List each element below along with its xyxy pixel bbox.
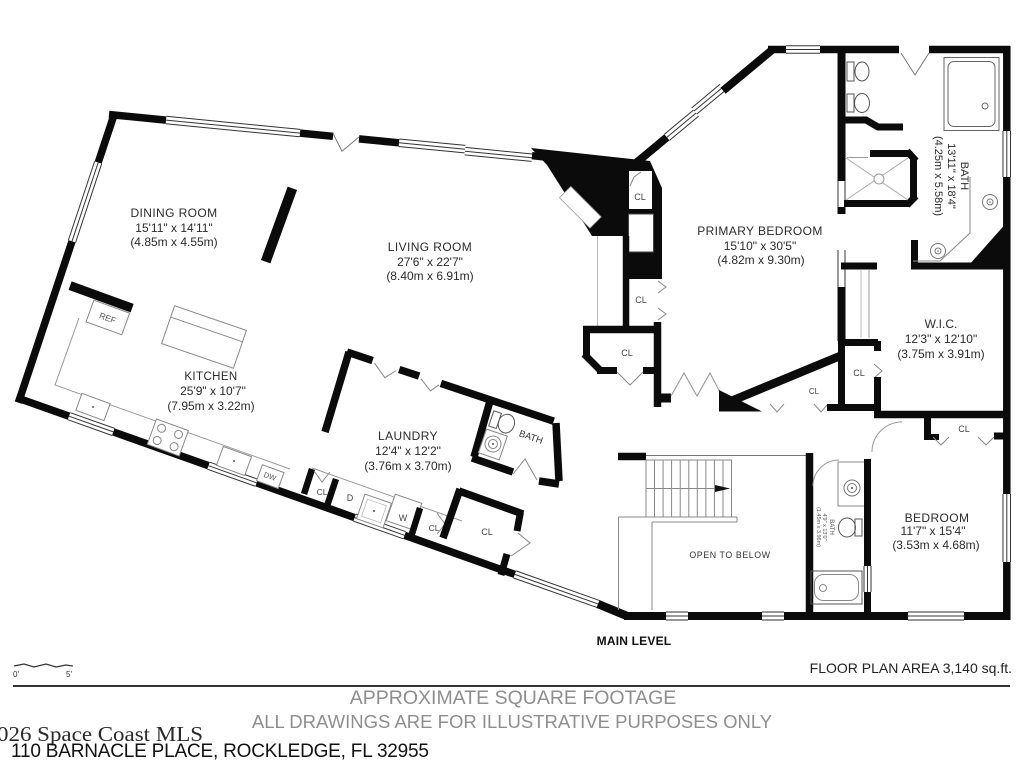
svg-text:D: D xyxy=(347,493,354,503)
svg-text:(3.75m x 3.91m): (3.75m x 3.91m) xyxy=(897,347,984,361)
svg-text:CL: CL xyxy=(429,523,440,533)
svg-text:CL: CL xyxy=(317,487,328,497)
svg-text:(4.85m x 4.55m): (4.85m x 4.55m) xyxy=(130,235,217,249)
svg-text:27'6" x 22'7": 27'6" x 22'7" xyxy=(397,255,463,269)
svg-text:DINING ROOM: DINING ROOM xyxy=(130,206,217,220)
svg-text:5': 5' xyxy=(66,670,72,679)
svg-text:25'9" x 10'7": 25'9" x 10'7" xyxy=(180,384,246,398)
svg-text:15'10" x 30'5": 15'10" x 30'5" xyxy=(724,239,797,253)
svg-text:11'7" x 15'4": 11'7" x 15'4" xyxy=(901,524,966,538)
svg-text:(7.95m x 3.22m): (7.95m x 3.22m) xyxy=(167,399,254,413)
svg-text:(4.82m x 9.30m): (4.82m x 9.30m) xyxy=(717,253,804,267)
svg-text:CL: CL xyxy=(621,348,633,358)
svg-text:CL: CL xyxy=(853,368,865,378)
svg-text:CL: CL xyxy=(635,295,647,305)
svg-text:12'4" x 12'2": 12'4" x 12'2" xyxy=(375,444,441,458)
svg-text:110 BARNACLE PLACE, ROCKLEDGE,: 110 BARNACLE PLACE, ROCKLEDGE, FL 32955 xyxy=(11,741,429,762)
svg-text:(3.76m x 3.70m): (3.76m x 3.70m) xyxy=(364,459,451,473)
svg-text:BEDROOM: BEDROOM xyxy=(905,511,970,525)
svg-text:BATH: BATH xyxy=(958,162,970,191)
svg-text:BATH: BATH xyxy=(828,519,834,535)
svg-text:(4.25m x 5.58m): (4.25m x 5.58m) xyxy=(932,136,944,216)
svg-text:ALL DRAWINGS ARE FOR ILLUSTRAT: ALL DRAWINGS ARE FOR ILLUSTRATIVE PURPOS… xyxy=(252,711,772,732)
svg-text:(3.53m x 4.68m): (3.53m x 4.68m) xyxy=(892,538,979,552)
svg-text:OPEN TO BELOW: OPEN TO BELOW xyxy=(689,550,770,560)
svg-text:W: W xyxy=(399,513,408,523)
svg-text:CL: CL xyxy=(958,424,970,434)
svg-text:PRIMARY BEDROOM: PRIMARY BEDROOM xyxy=(697,224,823,238)
svg-text:LIVING ROOM: LIVING ROOM xyxy=(388,240,472,254)
svg-text:15'11" x 14'11": 15'11" x 14'11" xyxy=(135,221,212,235)
svg-text:FLOOR PLAN AREA 3,140 sq.ft.: FLOOR PLAN AREA 3,140 sq.ft. xyxy=(810,660,1012,676)
svg-text:W.I.C.: W.I.C. xyxy=(925,317,958,331)
svg-text:12'3" x 12'10": 12'3" x 12'10" xyxy=(905,332,978,346)
svg-text:13'11" x 18'4": 13'11" x 18'4" xyxy=(945,143,957,209)
svg-text:MAIN LEVEL: MAIN LEVEL xyxy=(597,634,672,648)
svg-text:(1.45m x 3.96m): (1.45m x 3.96m) xyxy=(815,507,821,547)
svg-text:LAUNDRY: LAUNDRY xyxy=(378,429,438,443)
svg-text:CL: CL xyxy=(634,192,646,202)
svg-text:0': 0' xyxy=(13,670,19,679)
svg-text:CL: CL xyxy=(809,387,820,396)
svg-text:(8.40m x 6.91m): (8.40m x 6.91m) xyxy=(386,269,473,283)
svg-text:APPROXIMATE SQUARE FOOTAGE: APPROXIMATE SQUARE FOOTAGE xyxy=(350,687,677,709)
svg-text:CL: CL xyxy=(481,527,493,537)
svg-text:KITCHEN: KITCHEN xyxy=(184,371,237,383)
